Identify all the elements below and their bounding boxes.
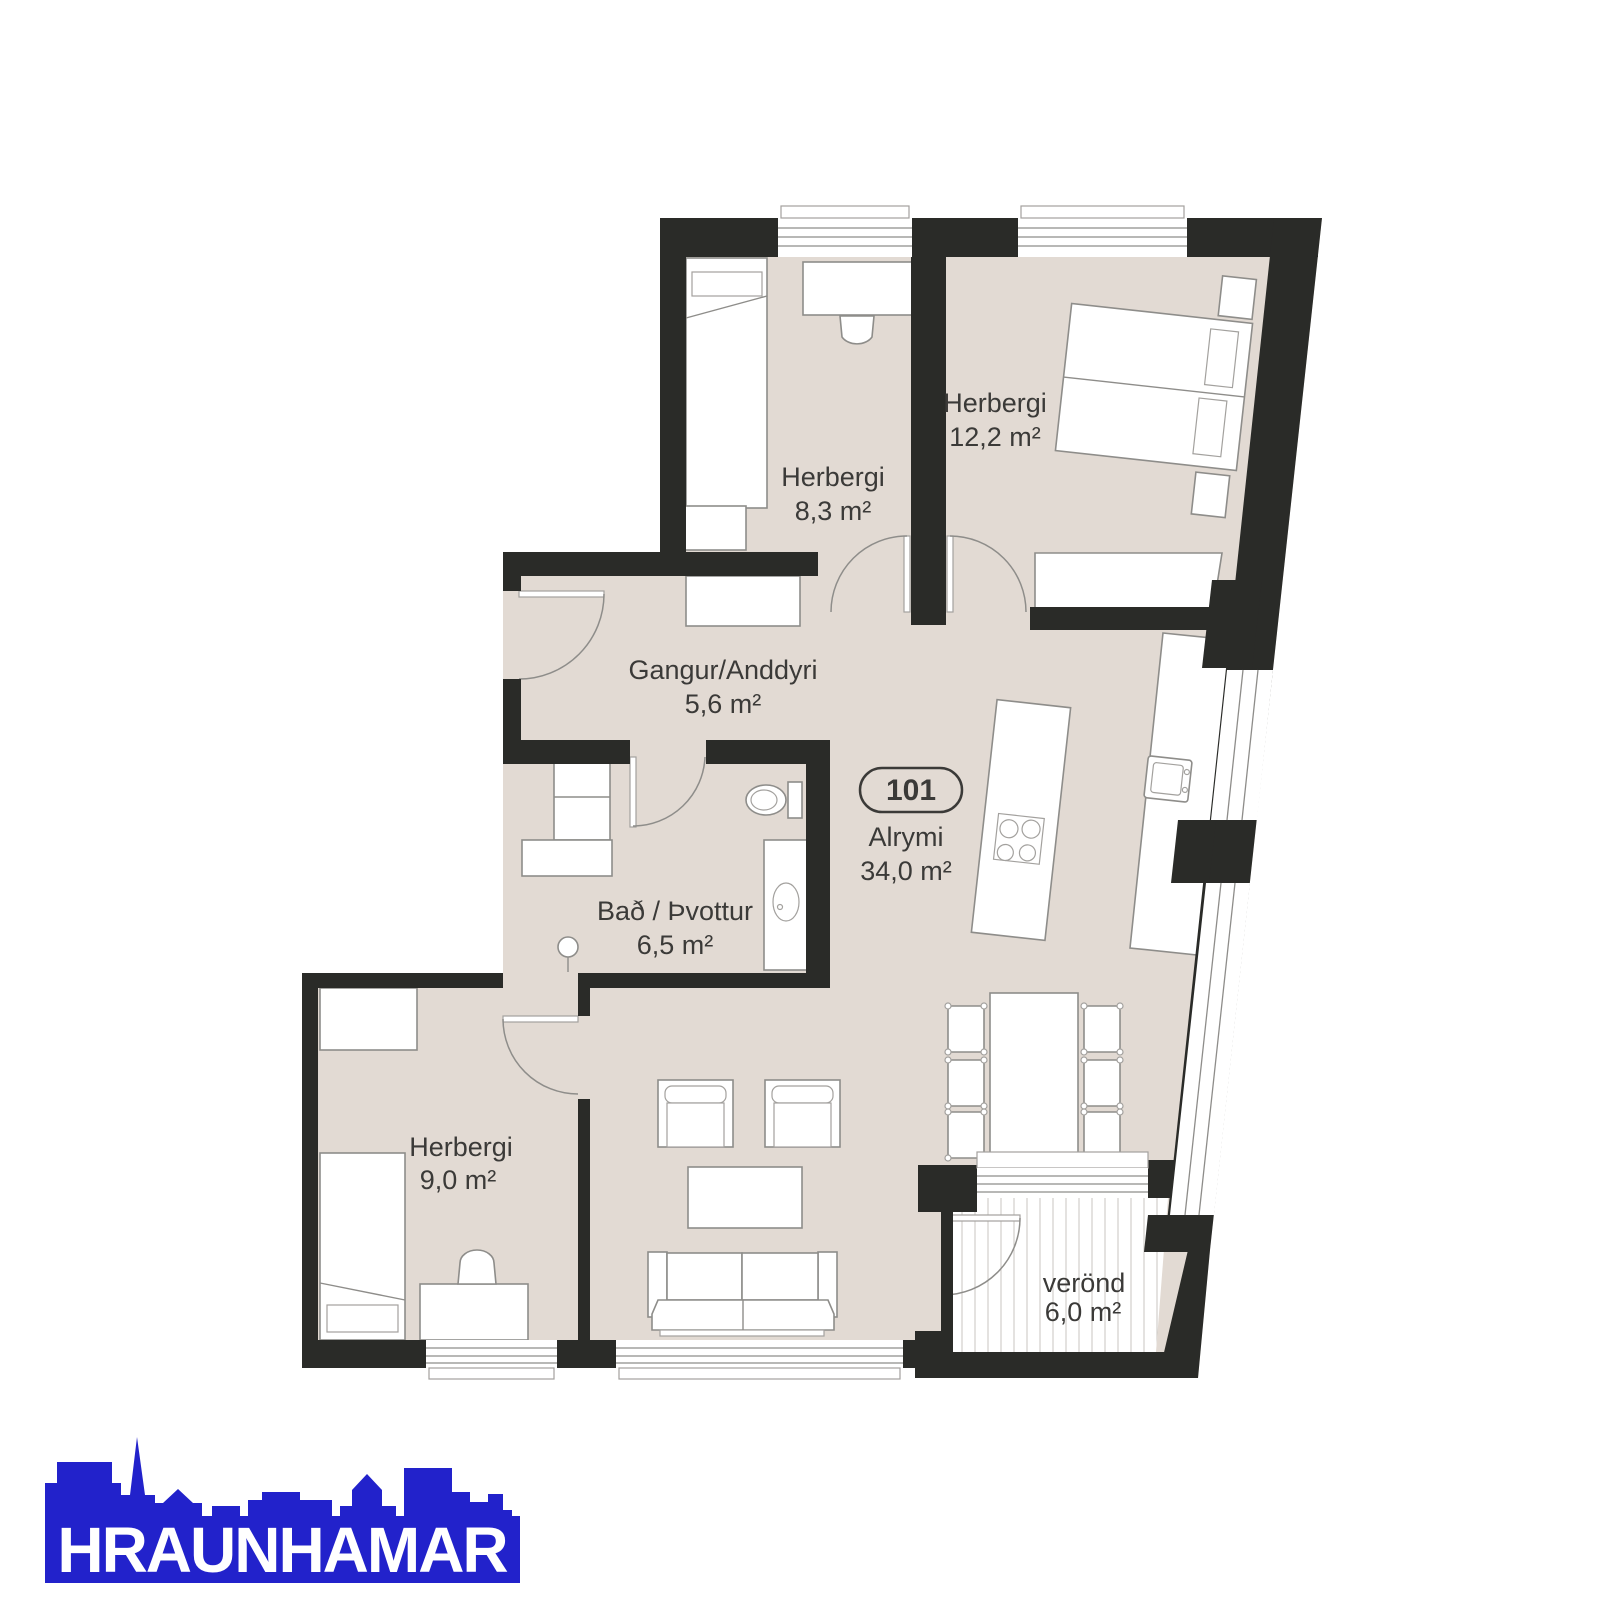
room-label-herbergi-122-name: Herbergi	[943, 388, 1047, 418]
armchair-symbol	[658, 1080, 733, 1147]
single-bed-symbol	[320, 1153, 405, 1340]
room-label-herbergi-90-name: Herbergi	[409, 1132, 513, 1162]
dining-chairs-left	[945, 1003, 987, 1161]
room-label-gangur-area: 5,6 m²	[685, 689, 762, 719]
kitchen-sink-symbol	[1144, 756, 1192, 803]
room-label-herbergi-90-area: 9,0 m²	[420, 1165, 497, 1195]
room-label-verond-area: 6,0 m²	[1045, 1297, 1122, 1327]
window-bedroom-83	[778, 206, 912, 257]
coffee-table-symbol	[688, 1167, 802, 1228]
desk-symbol	[803, 262, 913, 315]
dresser-bench-symbol	[1035, 553, 1222, 610]
armchair-symbol	[765, 1080, 840, 1147]
room-label-verond-name: verönd	[1043, 1268, 1126, 1298]
hall-wardrobe-symbol	[686, 576, 800, 626]
room-label-herbergi-122-area: 12,2 m²	[949, 422, 1041, 452]
closet-symbol	[320, 988, 417, 1050]
logo: HRAUNHAMAR	[45, 1437, 520, 1586]
window-bedroom-90	[426, 1340, 557, 1379]
sofa-symbol	[648, 1252, 837, 1336]
logo-skyline	[45, 1437, 512, 1516]
dining-chairs-right	[1081, 1003, 1123, 1161]
room-label-alrymi-name: Alrymi	[869, 822, 944, 852]
room-label-herbergi-83-area: 8,3 m²	[795, 496, 872, 526]
vanity-sink-symbol	[764, 840, 810, 970]
single-bed-symbol	[686, 258, 767, 508]
sliding-door-veranda	[977, 1152, 1148, 1198]
desk-symbol	[420, 1284, 528, 1340]
room-label-gangur-name: Gangur/Anddyri	[628, 655, 817, 685]
window-bedroom-122	[1018, 206, 1187, 257]
toilet-symbol	[746, 782, 802, 818]
room-label-bad-area: 6,5 m²	[637, 930, 714, 960]
logo-wordmark: HRAUNHAMAR	[57, 1514, 507, 1586]
window-living	[616, 1340, 903, 1379]
floorplan-canvas: Herbergi 8,3 m² Herbergi 12,2 m² Gangur/…	[0, 0, 1600, 1600]
nightstand-symbol	[684, 506, 746, 550]
room-label-alrymi-area: 34,0 m²	[860, 856, 952, 886]
desk-chair-symbol	[458, 1250, 496, 1284]
desk-chair-symbol	[840, 316, 874, 344]
unit-badge-number: 101	[886, 774, 936, 807]
dining-set-symbol	[945, 993, 1123, 1170]
floorplan-page: Herbergi 8,3 m² Herbergi 12,2 m² Gangur/…	[0, 0, 1600, 1600]
unit-badge: 101	[860, 768, 962, 812]
room-label-herbergi-83-name: Herbergi	[781, 462, 885, 492]
dining-table-symbol	[990, 993, 1078, 1170]
room-label-bad-name: Bað / Þvottur	[597, 896, 753, 926]
